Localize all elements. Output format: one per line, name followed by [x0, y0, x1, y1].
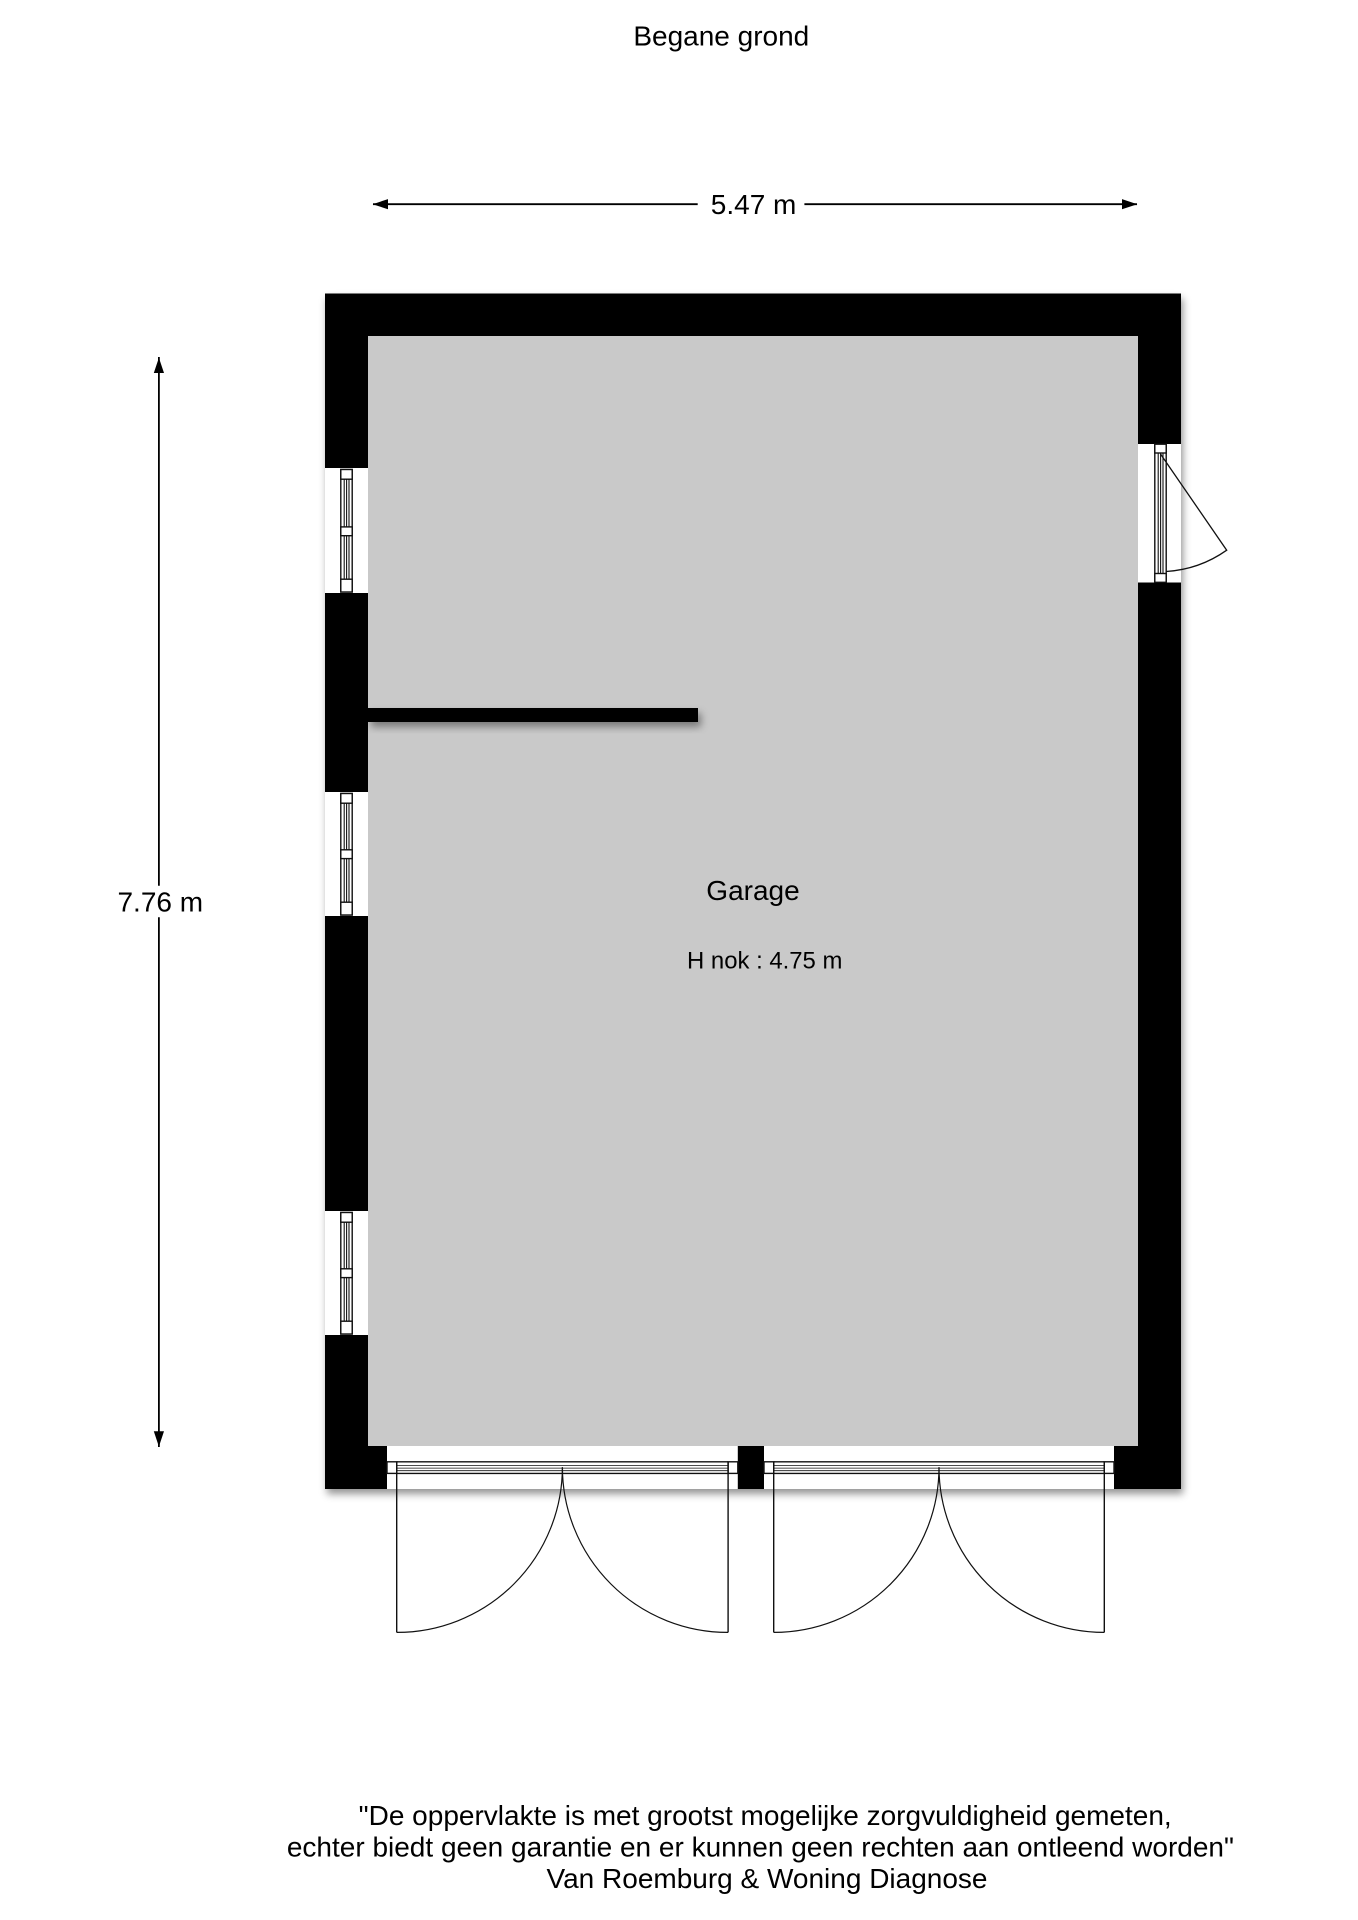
svg-text:Begane grond: Begane grond — [633, 21, 809, 52]
svg-text:7.76 m: 7.76 m — [117, 887, 203, 918]
svg-text:"De oppervlakte is met grootst: "De oppervlakte is met grootst mogelijke… — [359, 1800, 1172, 1831]
svg-text:echter biedt geen garantie en: echter biedt geen garantie en er kunnen … — [287, 1832, 1234, 1863]
svg-text:Van Roemburg & Woning Diagnose: Van Roemburg & Woning Diagnose — [547, 1863, 988, 1894]
svg-text:5.47 m: 5.47 m — [711, 189, 797, 220]
svg-text:Garage: Garage — [706, 875, 799, 906]
svg-text:H nok : 4.75 m: H nok : 4.75 m — [687, 948, 842, 975]
